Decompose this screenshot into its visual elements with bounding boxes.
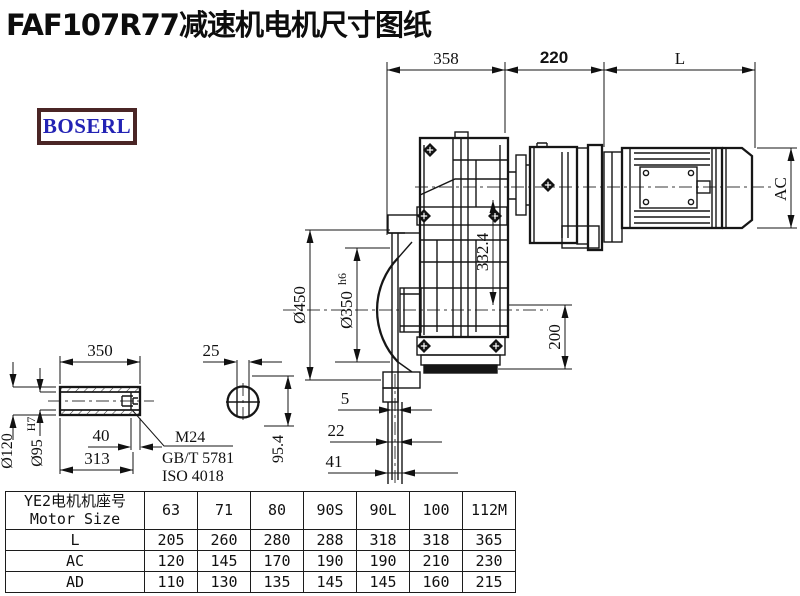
dim-AC: AC	[771, 177, 790, 201]
dim-hub-od: Ø120	[0, 433, 16, 469]
table-col-header: 90L	[357, 492, 410, 530]
table-cell: 205	[145, 530, 198, 551]
table-col-header: 112M	[463, 492, 516, 530]
motor-size-table: YE2电机机座号Motor Size63718090S90L100112ML20…	[5, 491, 516, 593]
table-cell: 145	[357, 572, 410, 593]
table-cell: 190	[357, 551, 410, 572]
table-col-header: 90S	[304, 492, 357, 530]
table-cell: 190	[304, 551, 357, 572]
label-std-gb: GB/T 5781	[162, 450, 234, 467]
table-cell: 365	[463, 530, 516, 551]
table-col-header: 100	[410, 492, 463, 530]
table-cell: 170	[251, 551, 304, 572]
dim-40: 40	[93, 426, 110, 445]
dim-41: 41	[326, 452, 343, 471]
hollow-shaft-detail	[60, 387, 260, 418]
dim-5: 5	[341, 389, 350, 408]
table-col-header: 63	[145, 492, 198, 530]
drawing-page: FAF107R77减速机电机尺寸图纸 BOSERL	[0, 0, 800, 596]
output-flange	[377, 215, 421, 484]
table-row: AC120145170190190210230	[6, 551, 516, 572]
table-corner-cell: YE2电机机座号Motor Size	[6, 492, 145, 530]
table-cell: 215	[463, 572, 516, 593]
table-col-header: 71	[198, 492, 251, 530]
table-header-row: YE2电机机座号Motor Size63718090S90L100112M	[6, 492, 516, 530]
table-cell: 280	[251, 530, 304, 551]
dim-bore: Ø95	[29, 439, 46, 467]
table-cell: 120	[145, 551, 198, 572]
label-std-iso: ISO 4018	[162, 468, 224, 485]
dim-shaft-350: 350	[87, 341, 113, 360]
dim-22: 22	[328, 421, 345, 440]
table-row: AD110130135145145160215	[6, 572, 516, 593]
dim-95-4: 95.4	[270, 435, 287, 463]
table-cell: 260	[198, 530, 251, 551]
table-cell: 318	[410, 530, 463, 551]
table-cell: 318	[357, 530, 410, 551]
dim-220: 220	[540, 48, 568, 67]
dim-200: 200	[545, 324, 564, 350]
table-cell: 145	[304, 572, 357, 593]
table-cell: 110	[145, 572, 198, 593]
dim-350-tol: h6	[335, 273, 349, 285]
dim-25: 25	[203, 341, 220, 360]
table-row-label: AD	[6, 572, 145, 593]
table-cell: 288	[304, 530, 357, 551]
table-cell: 210	[410, 551, 463, 572]
dim-332-4: 332.4	[473, 232, 492, 271]
table-col-header: 80	[251, 492, 304, 530]
table-row: L205260280288318318365	[6, 530, 516, 551]
table-row-label: L	[6, 530, 145, 551]
table-cell: 160	[410, 572, 463, 593]
dim-L: L	[675, 49, 685, 68]
gearbox-housing	[417, 132, 508, 373]
table-cell: 230	[463, 551, 516, 572]
dim-313: 313	[84, 449, 110, 468]
motor-outline	[604, 148, 752, 242]
dim-350: Ø350	[337, 291, 356, 329]
table-cell: 145	[198, 551, 251, 572]
motor-adapter	[508, 143, 602, 250]
dim-358: 358	[433, 49, 459, 68]
table-cell: 135	[251, 572, 304, 593]
table-row-label: AC	[6, 551, 145, 572]
table-cell: 130	[198, 572, 251, 593]
dim-bore-tol: H7	[24, 417, 38, 432]
label-bolt: M24	[175, 429, 205, 446]
dim-450: Ø450	[290, 286, 309, 324]
